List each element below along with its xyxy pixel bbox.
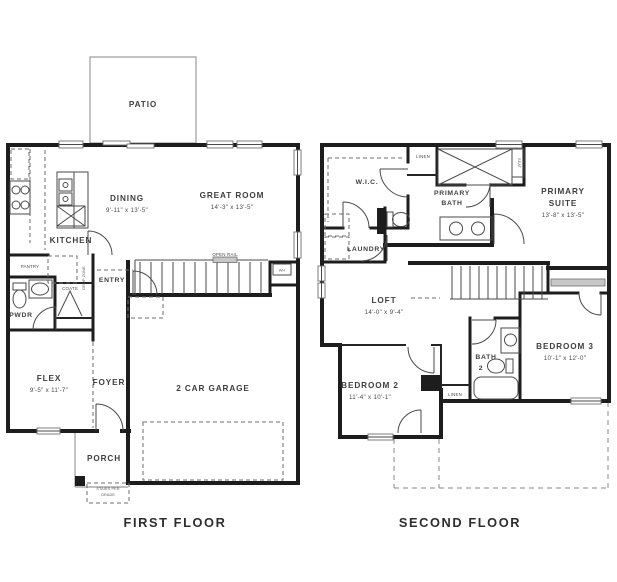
drop-zone-label: DROP ZONE [82, 266, 86, 290]
bath2-label-2: 2 [479, 365, 483, 372]
first-floor-stairs [140, 257, 261, 294]
primary-suite-label-1: PRIMARY [541, 187, 585, 196]
stairs-note-line1: STAIRS PER [96, 487, 119, 491]
kitchen-island [57, 172, 88, 228]
dining-label: DINING [110, 194, 144, 203]
foyer-label: FOYER [93, 378, 126, 387]
patio-label: PATIO [129, 100, 157, 109]
great-room-label: GREAT ROOM [200, 191, 265, 200]
dining-dims: 9'-11" x 13'-5" [106, 207, 148, 214]
first-floor-plan: PATIO DINING 9'-11" x 13'-5" GREAT ROOM … [8, 57, 301, 530]
bath2-toilet [488, 359, 514, 373]
lower-footprint-dashed [394, 403, 608, 488]
pantry-label: PANTRY [21, 264, 40, 269]
open-rail-label: OPEN RAIL [212, 252, 238, 257]
linen-upper-label: LINEN [416, 154, 430, 159]
loft-label: LOFT [372, 296, 397, 305]
washer-box [325, 214, 349, 236]
powder-label: PWDR [9, 312, 33, 319]
bath2-label-1: BATH [475, 354, 496, 361]
primary-toilet [387, 212, 410, 227]
bath2-tub [474, 377, 518, 399]
second-floor-plan: W.I.C. LINEN PRIMARY BATH SEAT PRIMARY S… [318, 141, 609, 530]
seat-label: SEAT [517, 158, 521, 169]
linen-lower-label: LINEN [448, 392, 462, 397]
floorplan-page: PATIO DINING 9'-11" x 13'-5" GREAT ROOM … [0, 0, 617, 582]
water-heater-label: WH [279, 269, 286, 273]
porch-column [75, 476, 85, 486]
kitchen-label: KITCHEN [50, 236, 93, 245]
primary-suite-label-2: SUITE [549, 199, 578, 208]
primary-suite-dims: 13'-8" x 13'-5" [542, 212, 585, 219]
stairs-note-line2: GRADE [101, 493, 115, 497]
open-rail-marker [213, 257, 237, 263]
great-room-dims: 14'-3" x 13'-5" [211, 204, 254, 211]
flex-label: FLEX [37, 374, 62, 383]
laundry-label: LAUNDRY [347, 246, 385, 253]
coats-label: COATS [62, 286, 78, 291]
dryer-box [325, 237, 349, 259]
primary-bath-label-2: BATH [441, 200, 462, 207]
bedroom3-label: BEDROOM 3 [536, 342, 594, 351]
garage-label: 2 CAR GARAGE [176, 384, 250, 393]
second-floor-title: SECOND FLOOR [399, 515, 521, 530]
loft-dims: 14'-0" x 9'-4" [365, 309, 404, 316]
wic-label: W.I.C. [356, 179, 379, 186]
bath2-sink [501, 328, 520, 353]
bedroom3-dims: 10'-1" x 12'-0" [544, 355, 587, 362]
floorplan-drawing: PATIO DINING 9'-11" x 13'-5" GREAT ROOM … [0, 0, 617, 582]
porch-label: PORCH [87, 454, 121, 463]
primary-bath-label-1: PRIMARY [434, 190, 470, 197]
bedroom2-dims: 11'-4" x 10'-1" [349, 394, 391, 401]
stair-rail-marker [551, 279, 605, 286]
primary-shower [438, 149, 524, 185]
primary-vanity [440, 217, 492, 240]
powder-toilet [13, 283, 26, 308]
kitchen-range [10, 181, 30, 214]
bedroom2-label: BEDROOM 2 [341, 381, 399, 390]
flex-dims: 9'-5" x 11'-7" [30, 387, 68, 394]
first-floor-title: FIRST FLOOR [124, 515, 227, 530]
patio-slider-door [103, 141, 130, 145]
entry-label: ENTRY [99, 277, 125, 284]
